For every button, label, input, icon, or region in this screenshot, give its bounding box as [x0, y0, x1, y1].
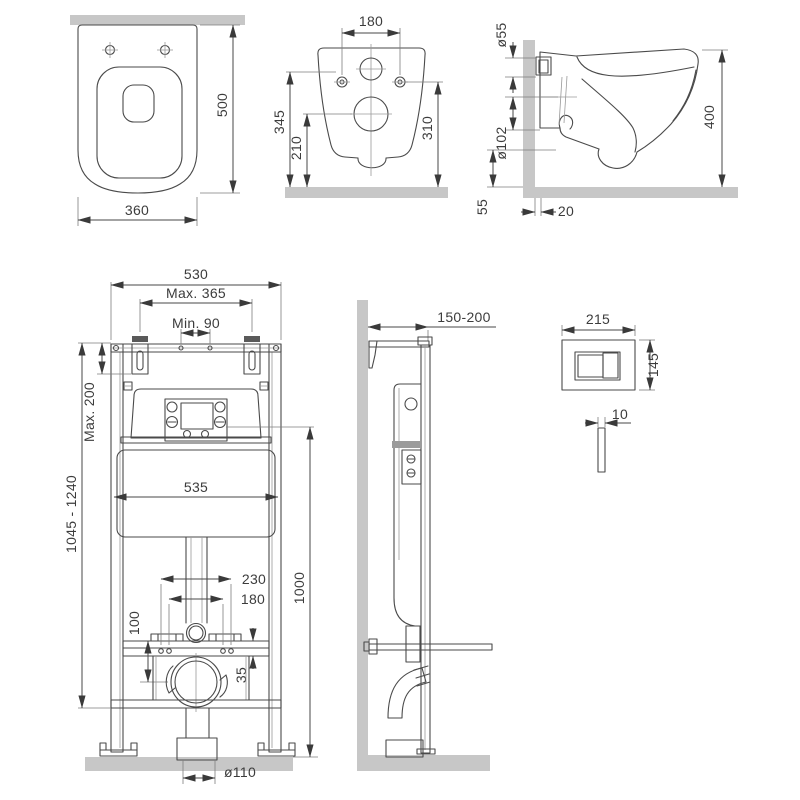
view-toilet-back: 180 345 210 310 [271, 13, 448, 198]
dim-label-outlet-diameter: ø102 [493, 126, 509, 159]
wall-section [357, 300, 368, 755]
dim-label-width: 360 [125, 202, 149, 218]
flush-plate-edge-view [598, 428, 605, 472]
floor-section [85, 757, 293, 771]
view-toilet-side: ø55 ø102 400 55 20 [474, 22, 738, 219]
mount-point-right [157, 42, 173, 58]
dim-label-outer-studs: 230 [242, 571, 266, 587]
dim-label-plate-height: 145 [645, 353, 661, 377]
frame-column-left [111, 344, 123, 752]
dim-label-inner-studs: 180 [241, 591, 265, 607]
wall-bracket-hook [369, 341, 377, 368]
seat-line [577, 57, 694, 76]
dim-label-height-400: 400 [701, 105, 717, 129]
rim-inner-line [673, 70, 696, 121]
technical-drawing: 500 360 180 345 210 310 [0, 0, 800, 800]
dim-label-plate-width: 215 [586, 311, 610, 327]
dim-label-rail-gap: 35 [233, 667, 249, 683]
view-frame-side: 150-200 [357, 300, 496, 771]
flush-unit-box [165, 399, 227, 441]
cistern-cover [131, 389, 261, 438]
dim-label-1000: 1000 [291, 572, 307, 604]
dim-label-frame-width: 530 [184, 266, 208, 282]
dim-label-height-range: 1045 - 1240 [63, 475, 79, 553]
drain-spigot [177, 738, 217, 760]
foot-left [100, 743, 137, 756]
floor-section [285, 187, 448, 198]
cistern-profile [394, 384, 421, 626]
bowl-opening [123, 85, 154, 122]
dim-label-wall-gap-20: 20 [558, 203, 574, 219]
dim-label-310: 310 [419, 116, 435, 140]
dim-label-clearance-55: 55 [474, 199, 490, 215]
dim-label-max-365: Max. 365 [166, 285, 226, 301]
foot-right [258, 743, 295, 756]
big-flush-button [578, 355, 603, 377]
view-toilet-top: 500 360 [70, 15, 245, 226]
dim-label-345: 345 [271, 110, 287, 134]
technical-drawing-page: 500 360 180 345 210 310 [0, 0, 800, 800]
dim-label-depth-range: 150-200 [437, 309, 490, 325]
side-outline [540, 49, 698, 168]
mount-point-left [102, 42, 118, 58]
dim-label-hole-spacing: 180 [359, 13, 383, 29]
wall-section [70, 15, 245, 25]
small-flush-button [603, 353, 618, 378]
hanger-tab-left [132, 336, 148, 342]
view-flush-plate: 215 145 10 [562, 311, 661, 472]
back-outline [318, 48, 425, 168]
dim-label-min-90: Min. 90 [172, 315, 220, 331]
dim-label-inlet-diameter: ø55 [493, 22, 509, 47]
view-frame-front: 535 230 180 100 35 [63, 266, 318, 784]
dim-label-max-200: Max. 200 [81, 382, 97, 442]
dim-label-drain-height: 100 [126, 611, 142, 635]
bowl-curve [582, 79, 636, 152]
drain-bend-profile [388, 668, 426, 718]
button-surround [575, 352, 620, 380]
dim-label-depth: 500 [214, 93, 230, 117]
tank-port [405, 398, 417, 410]
trap-detail [559, 115, 572, 129]
flush-plate-body [562, 340, 635, 390]
dim-label-drain-diameter: ø110 [224, 764, 256, 780]
frame-rail [421, 345, 430, 753]
wall-anchor-plug [369, 639, 377, 654]
dim-label-tank-width: 535 [184, 479, 208, 495]
floor-section [357, 755, 490, 771]
fixing-hole-left [334, 77, 350, 87]
wall-section [523, 40, 535, 188]
shelf-edge [392, 441, 421, 448]
hanger-tab-right [244, 336, 260, 342]
wall-bracket-arm [369, 341, 429, 347]
dim-label-210: 210 [288, 136, 304, 160]
frame-column-right [269, 344, 281, 752]
dim-label-plate-thickness: 10 [612, 406, 628, 422]
floor-section [523, 187, 738, 198]
